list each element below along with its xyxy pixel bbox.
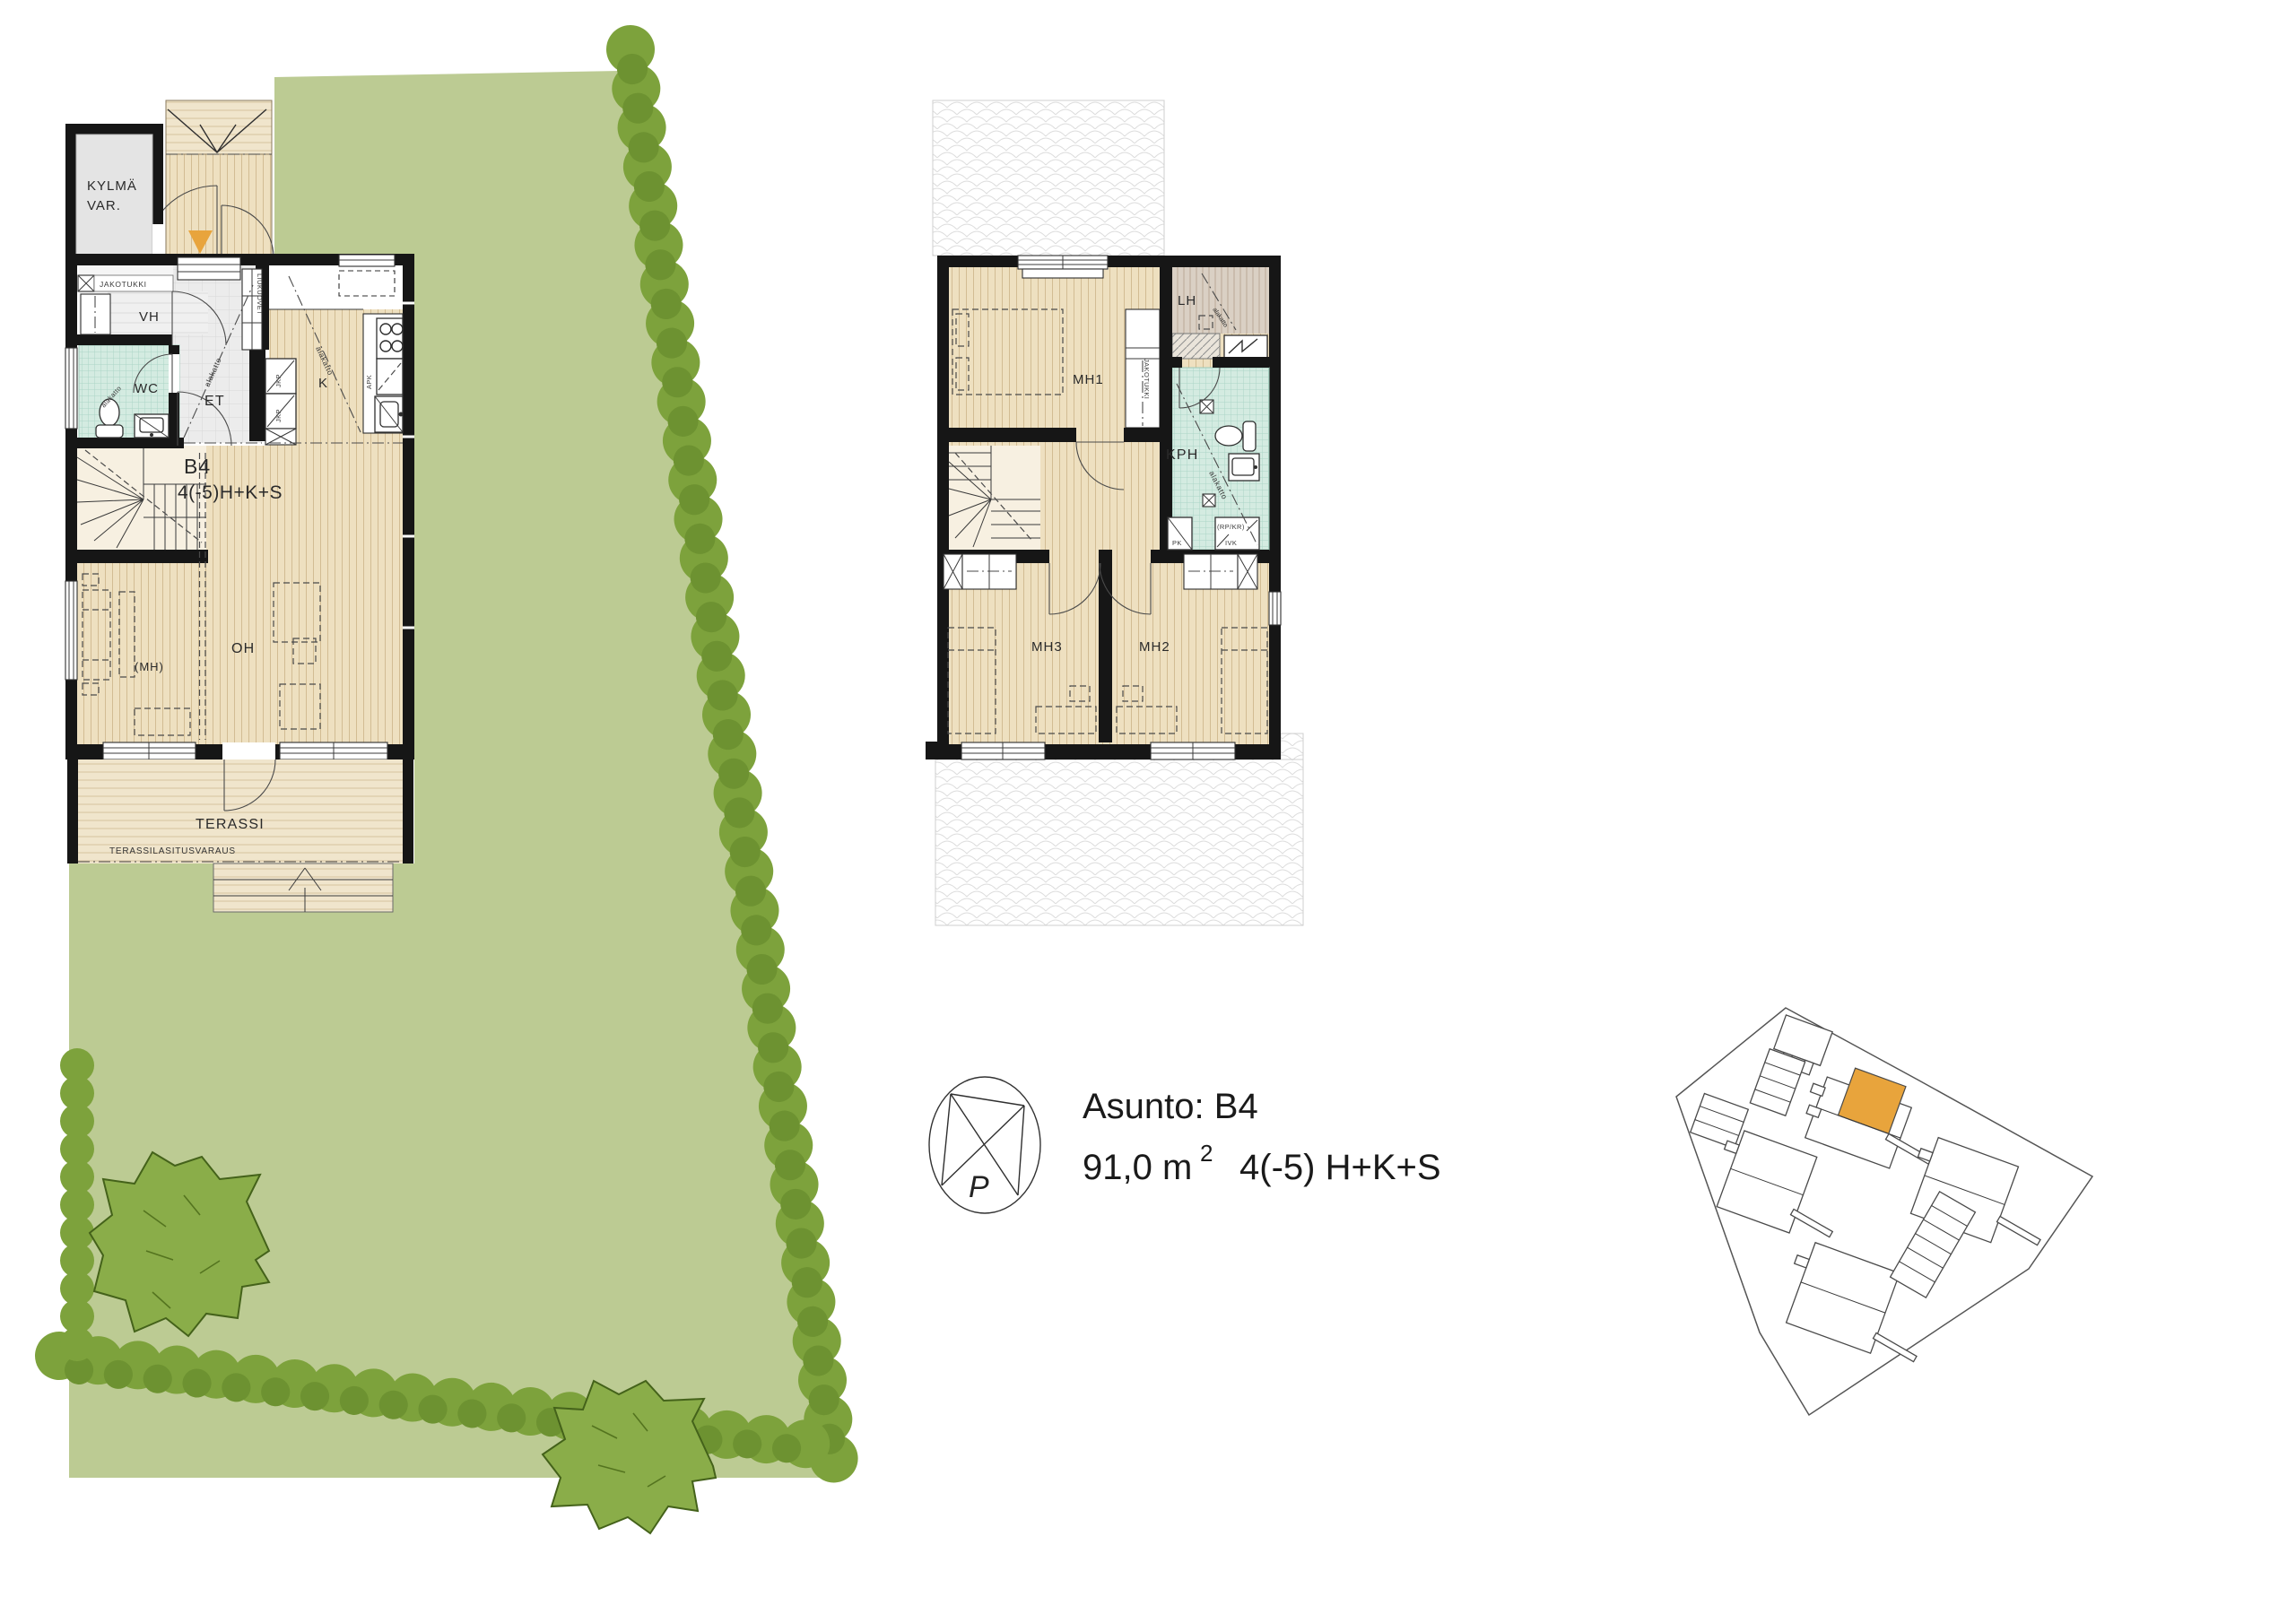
ivk-label: IVK <box>1225 539 1237 547</box>
sliding-doors-label: LIUKUOVET <box>256 273 264 315</box>
apartment-area-text: 91,0 m <box>1083 1148 1192 1187</box>
wc-label: WC <box>135 381 159 396</box>
entrance-porch <box>145 100 274 257</box>
entry-label: ET <box>204 394 225 409</box>
cold-storage-label-1: KYLMÄ <box>87 178 137 194</box>
sliding-door-closet: LIUKUOVET <box>242 269 264 350</box>
fridge-label-2: JKP <box>274 409 283 422</box>
upper-floor-plan: JAKOTUKKI <box>926 100 1303 925</box>
sauna-label: LH <box>1178 293 1196 308</box>
roof-top <box>933 100 1164 256</box>
cold-storage-label-2: VAR. <box>87 198 121 213</box>
sauna-bench <box>1172 334 1220 359</box>
living-room-label: OH <box>231 641 255 656</box>
roof-right-stub <box>1281 733 1303 759</box>
optional-bedroom-label: (MH) <box>135 660 164 673</box>
cold-storage: KYLMÄ VAR. <box>65 124 163 276</box>
roof-bottom <box>935 759 1303 925</box>
bedroom1-label: MH1 <box>1073 372 1104 387</box>
vestibule-label: VH <box>139 309 160 325</box>
apartment-rooms-text: 4(-5) H+K+S <box>1239 1148 1441 1187</box>
bedroom3-label: MH3 <box>1031 639 1063 655</box>
staircase-upper <box>949 446 1040 550</box>
kitchen-label: K <box>318 376 328 391</box>
washing-machine-label: PK <box>1172 539 1182 547</box>
vestibule-appliances <box>81 294 110 334</box>
manifold-label: JAKOTUKKI <box>100 280 147 289</box>
unit-spec-label: 4(-5)H+K+S <box>178 482 283 503</box>
bathroom-label: KPH <box>1166 447 1199 463</box>
fridge-label-1: JKP <box>274 374 283 387</box>
unit-id-label: B4 <box>184 455 211 478</box>
upper-manifold-label: JAKOTUKKI <box>1143 359 1151 399</box>
rp-kr-label: (RP/KR) <box>1217 523 1245 531</box>
compass: P <box>929 1077 1040 1213</box>
apartment-area-superscript: 2 <box>1200 1140 1213 1167</box>
terrace-steps <box>213 864 393 912</box>
manifold-box: JAKOTUKKI <box>78 275 173 291</box>
upper-closet: JAKOTUKKI <box>1126 309 1160 428</box>
floorplan-svg: KYLMÄ VAR. <box>0 0 2296 1623</box>
terrace-label: TERASSI <box>196 817 265 832</box>
compass-north-label: P <box>969 1170 989 1204</box>
apartment-info: Asunto: B4 91,0 m 2 4(-5) H+K+S <box>1083 1087 1441 1187</box>
terrace-glazing-label: TERASSILASITUSVARAUS <box>109 846 236 856</box>
floorplan-canvas: KYLMÄ VAR. <box>0 0 2296 1623</box>
dishwasher-label: APK <box>365 375 373 389</box>
sauna-heater <box>1224 335 1267 359</box>
bedroom2-label: MH2 <box>1139 639 1170 655</box>
apartment-id-text: Asunto: B4 <box>1083 1087 1258 1126</box>
site-location-map <box>1676 1008 2092 1415</box>
